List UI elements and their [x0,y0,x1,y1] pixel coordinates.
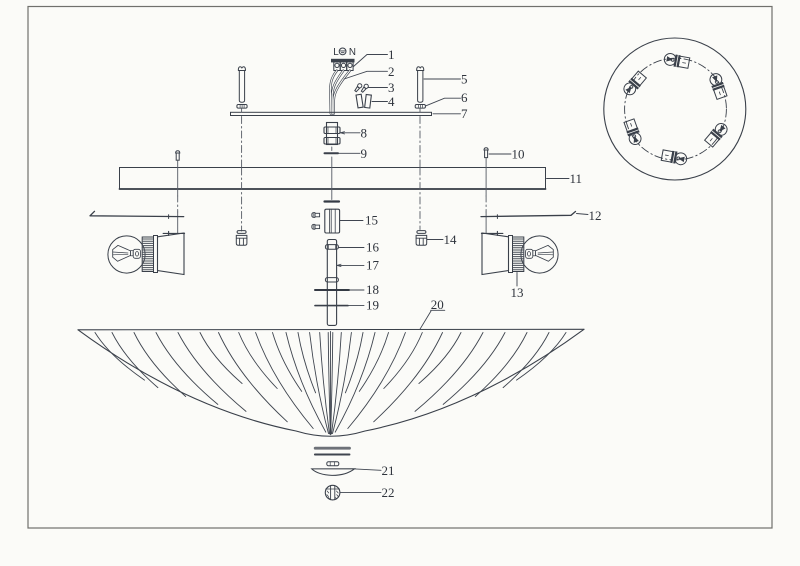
svg-text:22: 22 [382,485,395,500]
svg-text:2: 2 [388,64,395,79]
svg-text:12: 12 [589,208,602,223]
svg-text:20: 20 [431,297,444,312]
svg-text:18: 18 [366,282,379,297]
svg-text:5: 5 [461,72,468,87]
svg-text:1: 1 [388,47,395,62]
svg-text:L: L [333,47,339,58]
svg-text:16: 16 [366,240,380,255]
svg-text:9: 9 [361,146,368,161]
svg-text:15: 15 [365,213,378,228]
svg-text:7: 7 [461,106,468,121]
svg-text:10: 10 [512,147,525,162]
svg-text:21: 21 [382,463,395,478]
svg-text:11: 11 [570,171,583,186]
svg-text:17: 17 [366,258,380,273]
svg-text:13: 13 [511,285,524,300]
svg-text:N: N [349,47,356,58]
svg-text:4: 4 [388,94,395,109]
svg-text:14: 14 [444,232,458,247]
svg-text:8: 8 [361,126,368,141]
svg-text:3: 3 [388,80,395,95]
svg-text:6: 6 [461,90,468,105]
svg-text:19: 19 [366,298,379,313]
